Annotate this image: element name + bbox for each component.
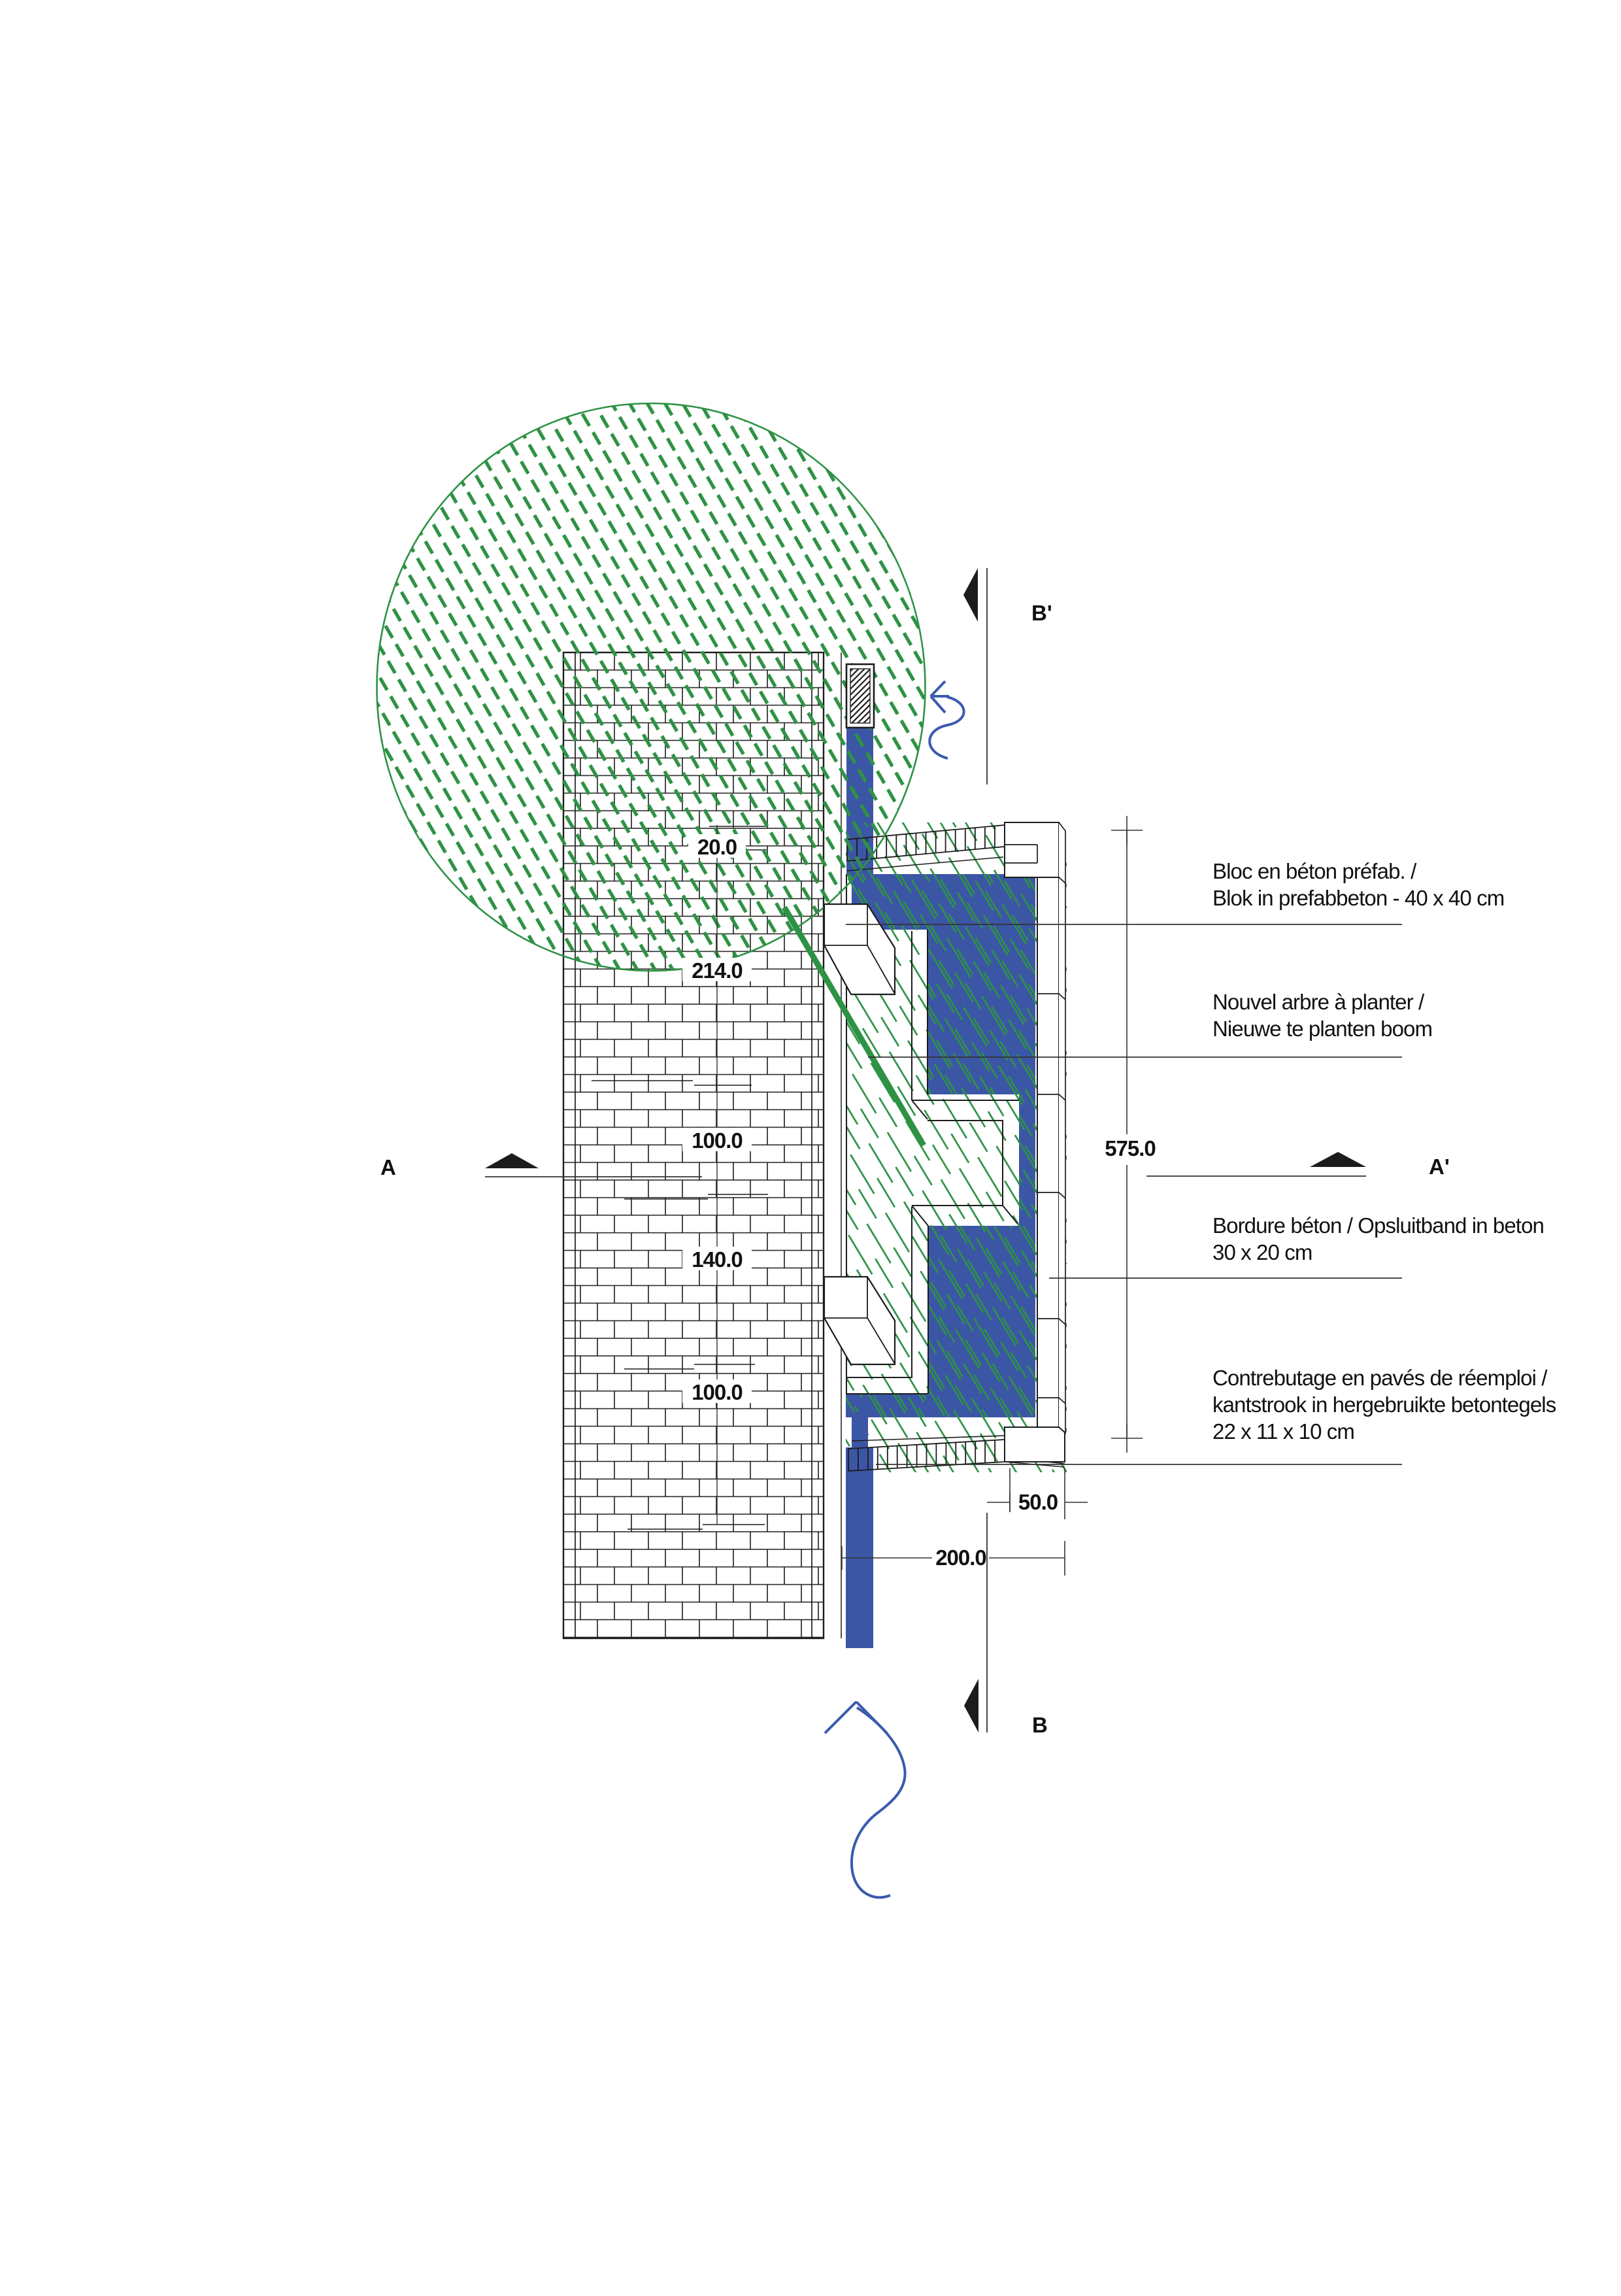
svg-text:Bordure béton / Opsluitband in: Bordure béton / Opsluitband in beton: [1212, 1213, 1544, 1238]
svg-text:Nouvel arbre à planter /: Nouvel arbre à planter /: [1212, 990, 1425, 1014]
svg-text:200.0: 200.0: [935, 1545, 986, 1570]
svg-text:B: B: [1032, 1713, 1048, 1737]
svg-text:B': B': [1031, 601, 1052, 625]
svg-text:Blok in prefabbeton - 40 x 40: Blok in prefabbeton - 40 x 40 cm: [1212, 886, 1504, 910]
svg-text:50.0: 50.0: [1018, 1490, 1058, 1514]
svg-text:A': A': [1429, 1155, 1450, 1179]
svg-text:30 x 20 cm: 30 x 20 cm: [1212, 1240, 1312, 1264]
svg-text:Contrebutage en pavés de réemp: Contrebutage en pavés de réemploi /: [1212, 1366, 1548, 1390]
svg-text:100.0: 100.0: [692, 1380, 743, 1404]
svg-text:140.0: 140.0: [692, 1247, 743, 1272]
svg-text:Bloc en béton préfab. /: Bloc en béton préfab. /: [1212, 859, 1417, 883]
svg-text:20.0: 20.0: [697, 835, 737, 859]
svg-text:575.0: 575.0: [1105, 1136, 1156, 1160]
svg-text:kantstrook in hergebruikte bet: kantstrook in hergebruikte betontegels: [1212, 1393, 1556, 1417]
svg-text:100.0: 100.0: [692, 1128, 743, 1153]
svg-text:22 x 11 x 10 cm: 22 x 11 x 10 cm: [1212, 1419, 1354, 1443]
svg-text:214.0: 214.0: [692, 958, 743, 983]
svg-text:A: A: [380, 1155, 396, 1179]
svg-text:Nieuwe te planten boom: Nieuwe te planten boom: [1212, 1017, 1432, 1041]
